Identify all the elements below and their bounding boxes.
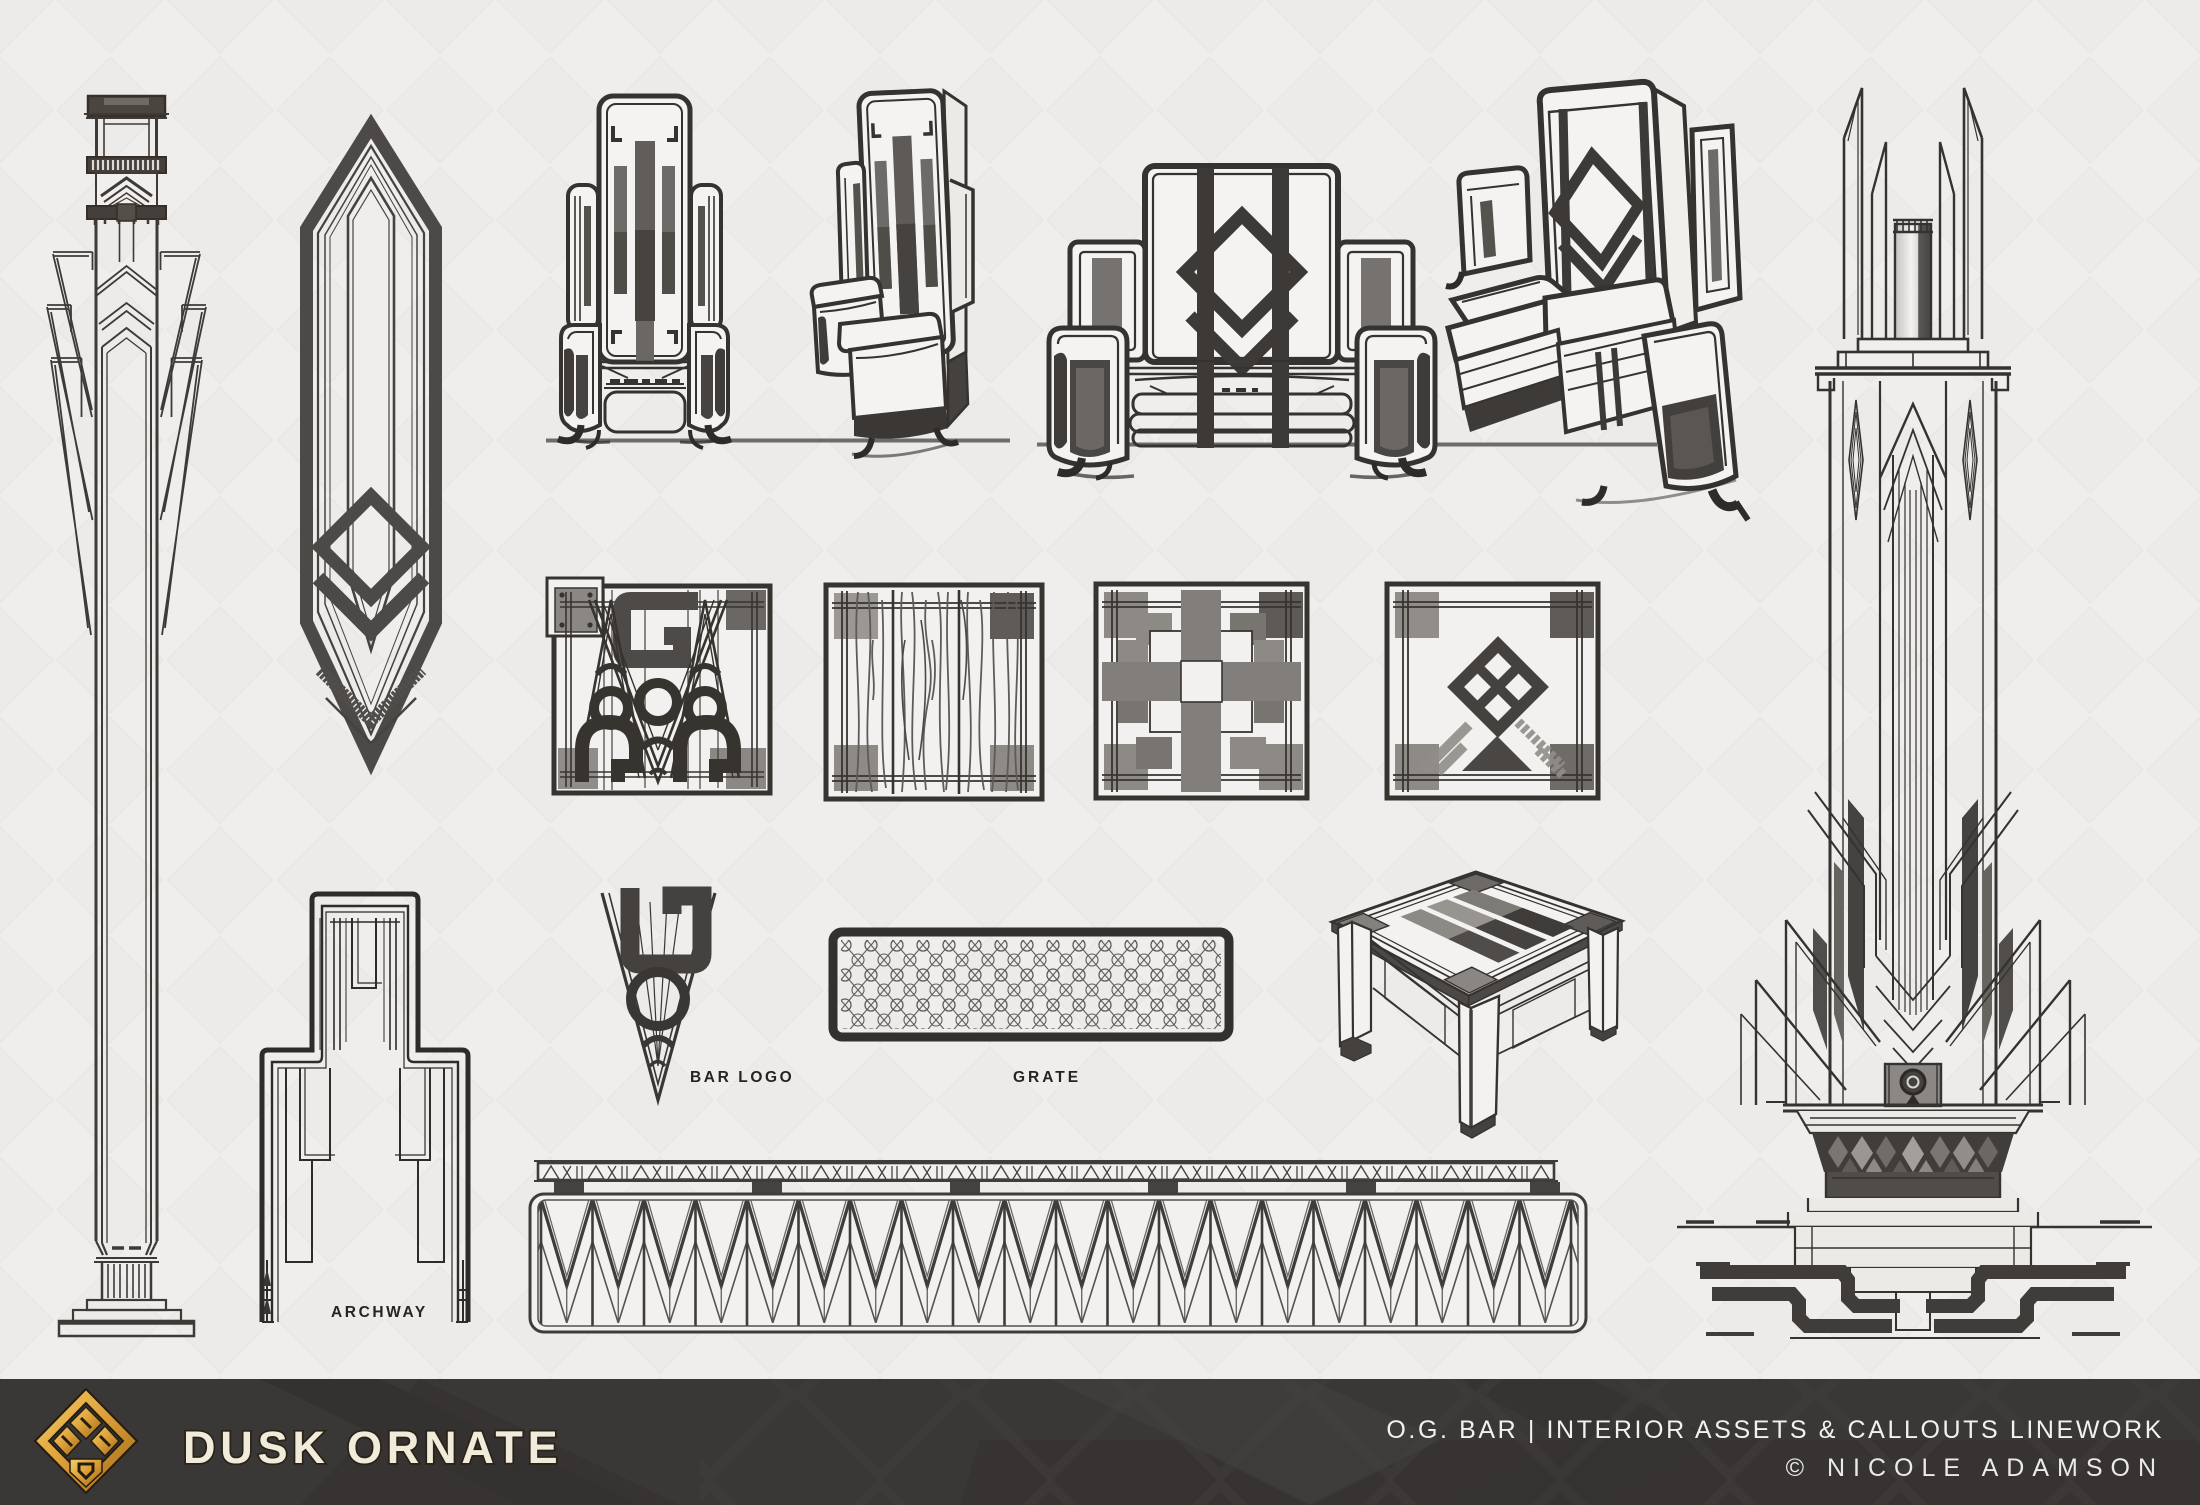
svg-text:O.G. BAR | INTERIOR ASSETS & C: O.G. BAR | INTERIOR ASSETS & CALLOUTS LI… — [1386, 1416, 2164, 1444]
svg-text:GRATE: GRATE — [1013, 1069, 1081, 1086]
svg-text:© NICOLE ADAMSON: © NICOLE ADAMSON — [1786, 1454, 2164, 1482]
svg-text:ARCHWAY: ARCHWAY — [331, 1304, 428, 1321]
svg-text:DUSK ORNATE: DUSK ORNATE — [183, 1422, 562, 1473]
svg-text:BAR LOGO: BAR LOGO — [690, 1069, 794, 1086]
